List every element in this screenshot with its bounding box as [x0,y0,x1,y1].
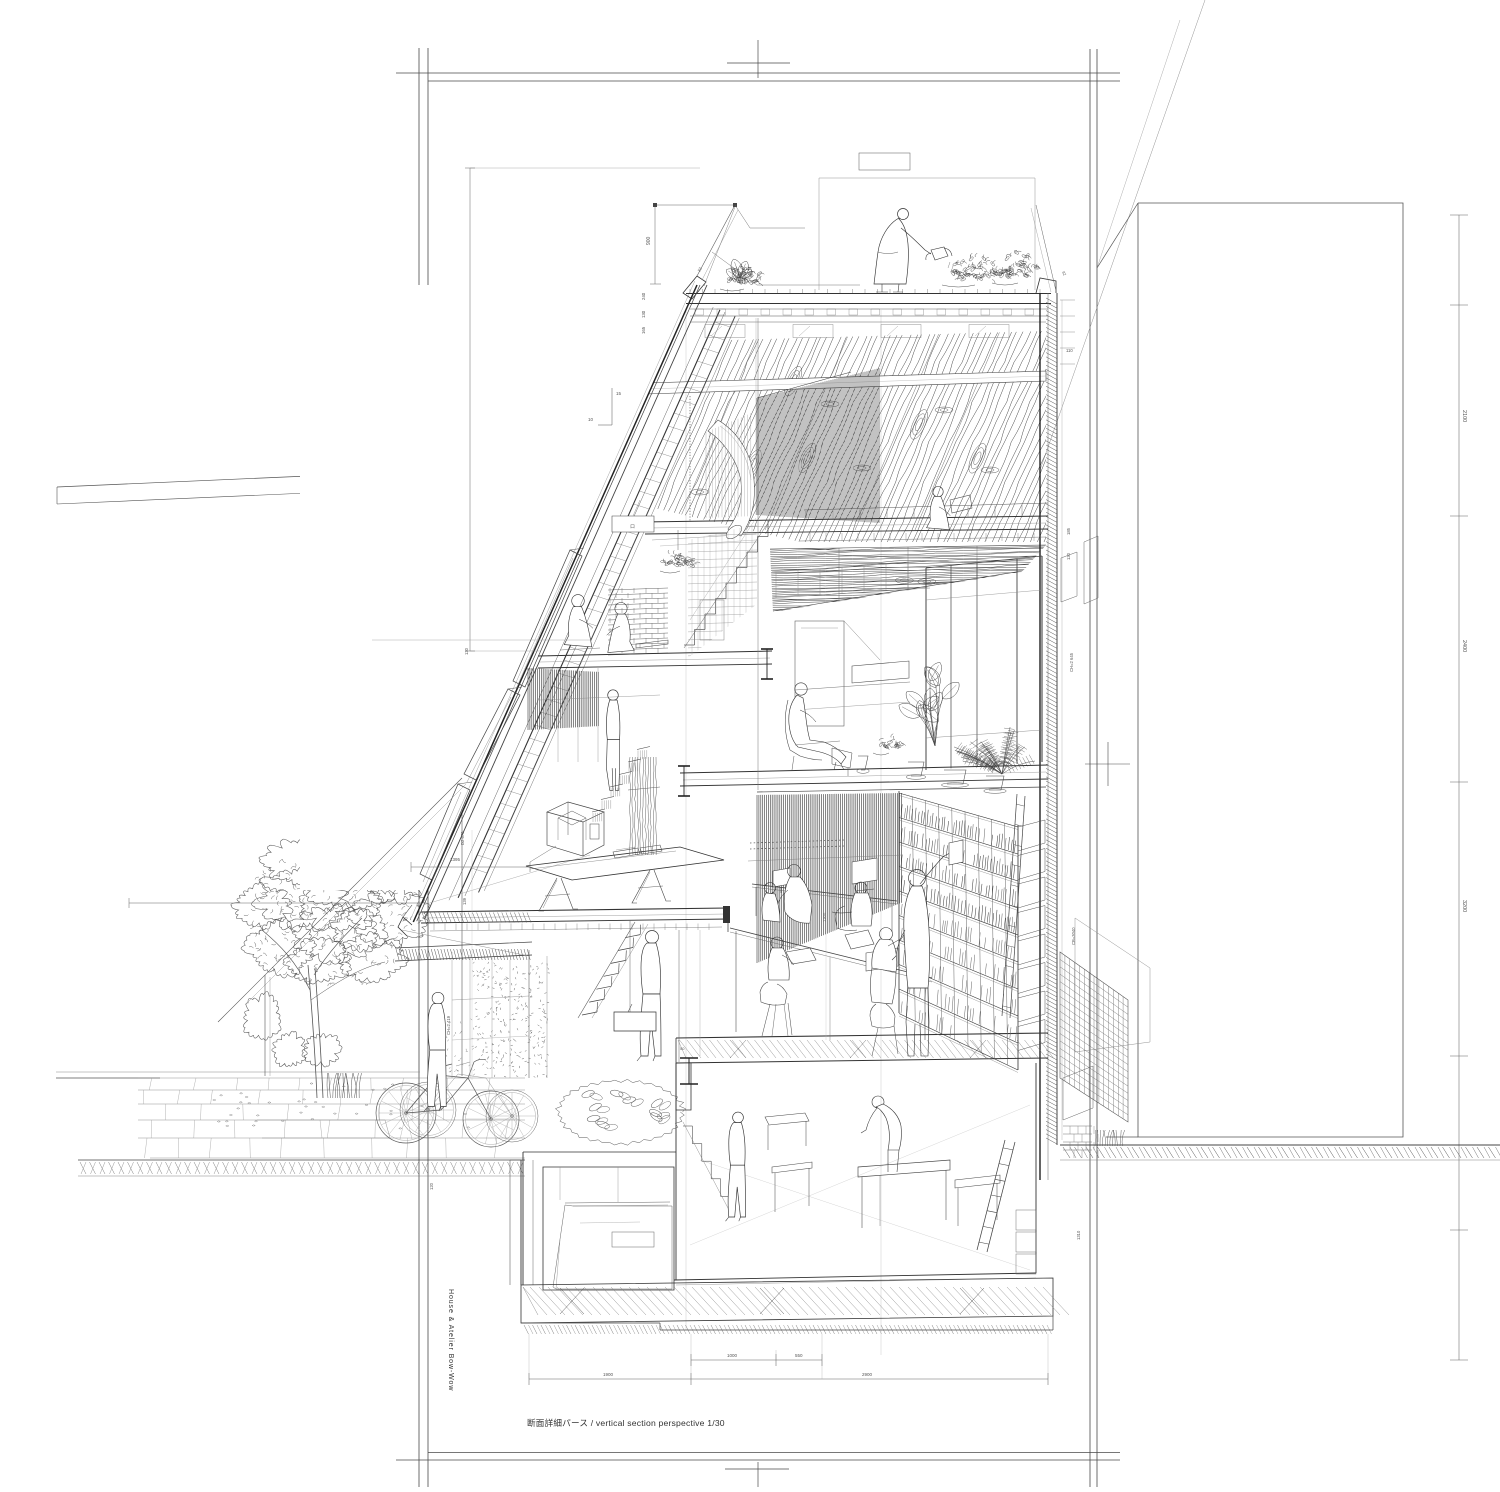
svg-text:165: 165 [641,326,646,334]
svg-text:185: 185 [1066,527,1071,535]
svg-text:120: 120 [429,1182,434,1190]
svg-text:CH=2 645: CH=2 645 [1069,652,1074,672]
svg-text:10: 10 [588,417,594,422]
svg-text:110: 110 [1066,348,1073,353]
svg-text:130: 130 [464,647,469,655]
svg-text:断面詳細パース / vertical section per: 断面詳細パース / vertical section perspective 1… [527,1417,725,1428]
svg-text:2900: 2900 [862,1372,873,1377]
svg-text:2400: 2400 [1461,640,1467,652]
svg-text:1395: 1395 [450,857,461,862]
svg-text:1310: 1310 [1076,1230,1081,1240]
svg-text:139: 139 [462,897,467,905]
svg-text:D2 670: D2 670 [460,831,465,845]
svg-text:CB=3040: CB=3040 [1071,927,1076,945]
svg-text:50: 50 [680,1046,685,1051]
svg-text:2100: 2100 [1461,410,1467,422]
svg-text:15: 15 [616,391,622,396]
svg-text:240: 240 [641,292,646,300]
svg-text:House & Atelier Bow-Wow: House & Atelier Bow-Wow [447,1289,454,1391]
svg-text:1900: 1900 [603,1372,614,1377]
svg-text:130: 130 [641,310,646,318]
svg-text:CH=2 419: CH=2 419 [446,1015,451,1035]
svg-text:1300: 1300 [822,912,827,922]
svg-text:3200: 3200 [1461,900,1467,912]
svg-text:ロ: ロ [630,524,635,530]
svg-text:130: 130 [1066,552,1071,560]
svg-text:900: 900 [646,236,652,245]
svg-text:1000: 1000 [727,1353,738,1358]
svg-text:550: 550 [795,1353,803,1358]
